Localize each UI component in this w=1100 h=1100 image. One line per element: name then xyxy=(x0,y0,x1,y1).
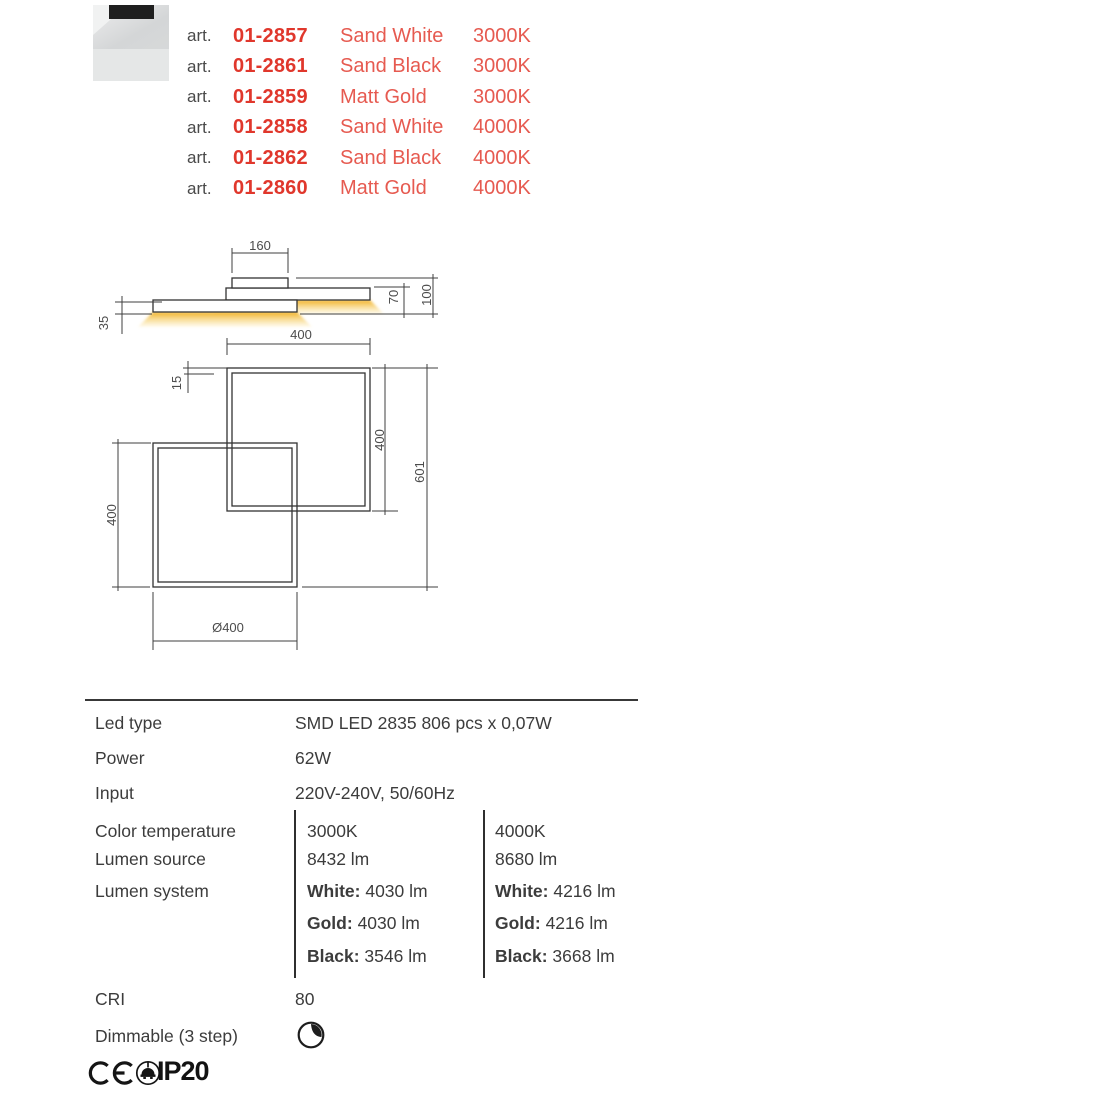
lumen-system-3000k-gold: Gold: 4030 lm xyxy=(307,913,420,933)
plan-view xyxy=(153,368,370,587)
spec-sheet-page: { "articles": [ {"prefix":"art.","code":… xyxy=(0,0,1100,1100)
upper-frame-profile xyxy=(226,288,370,300)
lower-frame-profile xyxy=(153,300,297,312)
lumen-source-4000k: 8680 lm xyxy=(495,849,557,869)
spec-table-top-rule xyxy=(85,699,638,701)
color-temperature-4000k: 4000K xyxy=(495,821,546,841)
lumen-system-label: Lumen system xyxy=(95,881,209,901)
column-divider-left xyxy=(294,810,296,978)
finish-key: White: xyxy=(307,881,360,901)
upper-square-outer xyxy=(227,368,370,511)
ip-rating: IP20 xyxy=(157,1056,209,1087)
input-label: Input xyxy=(95,783,134,803)
finish-value: 3668 lm xyxy=(552,946,614,966)
finish-key: Black: xyxy=(307,946,360,966)
dim-label-35: 35 xyxy=(96,316,111,330)
finish-key: Gold: xyxy=(495,913,541,933)
dim-label-right-400: 400 xyxy=(372,429,387,451)
dim-label-15: 15 xyxy=(169,376,184,390)
lumen-system-4000k-gold: Gold: 4216 lm xyxy=(495,913,608,933)
lumen-source-label: Lumen source xyxy=(95,849,206,869)
finish-value: 4216 lm xyxy=(553,881,615,901)
lumen-system-4000k-black: Black: 3668 lm xyxy=(495,946,615,966)
dim-label-diameter: Ø400 xyxy=(212,620,244,635)
cri-label: CRI xyxy=(95,989,125,1009)
lower-square-inner xyxy=(158,448,292,582)
lower-square-outer xyxy=(153,443,297,587)
finish-value: 4030 lm xyxy=(365,881,427,901)
cri-value: 80 xyxy=(295,989,314,1009)
lumen-source-3000k: 8432 lm xyxy=(307,849,369,869)
ce-mark-icon xyxy=(88,1058,138,1088)
lumen-system-4000k-white: White: 4216 lm xyxy=(495,881,616,901)
finish-value: 4030 lm xyxy=(358,913,420,933)
column-divider-right xyxy=(483,810,485,978)
dimmable-icon xyxy=(295,1019,327,1051)
finish-value: 3546 lm xyxy=(364,946,426,966)
led-type-label: Led type xyxy=(95,713,162,733)
finish-key: Gold: xyxy=(307,913,353,933)
dim-label-601: 601 xyxy=(412,461,427,483)
canopy-profile xyxy=(232,278,288,288)
color-temperature-label: Color temperature xyxy=(95,821,236,841)
power-value: 62W xyxy=(295,748,331,768)
lumen-system-3000k-black: Black: 3546 lm xyxy=(307,946,427,966)
lumen-system-3000k-white: White: 4030 lm xyxy=(307,881,428,901)
finish-key: Black: xyxy=(495,946,548,966)
input-value: 220V-240V, 50/60Hz xyxy=(295,783,455,803)
color-temperature-3000k: 3000K xyxy=(307,821,358,841)
upper-square-inner xyxy=(232,373,365,506)
dim-label-100: 100 xyxy=(419,284,434,306)
plan-view-dimensions xyxy=(112,338,438,650)
technical-drawing: 160 35 70 100 400 15 400 601 400 Ø400 xyxy=(0,0,500,680)
finish-key: White: xyxy=(495,881,548,901)
dim-label-160: 160 xyxy=(249,238,271,253)
dim-label-top-400: 400 xyxy=(290,327,312,342)
led-type-value: SMD LED 2835 806 pcs x 0,07W xyxy=(295,713,552,733)
dim-label-70: 70 xyxy=(386,290,401,304)
power-label: Power xyxy=(95,748,145,768)
finish-value: 4216 lm xyxy=(546,913,608,933)
dim-label-left-400: 400 xyxy=(104,504,119,526)
dimmable-label: Dimmable (3 step) xyxy=(95,1026,238,1046)
